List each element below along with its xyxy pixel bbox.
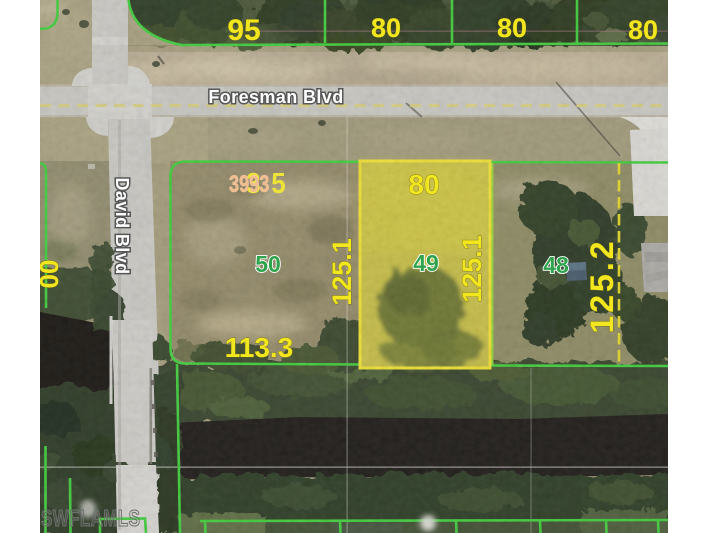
svg-text:80: 80 xyxy=(497,13,527,43)
svg-text:125.1: 125.1 xyxy=(327,238,357,306)
svg-text:49: 49 xyxy=(413,250,439,276)
svg-text:95: 95 xyxy=(227,14,260,47)
svg-text:80: 80 xyxy=(371,13,401,43)
svg-text:3993: 3993 xyxy=(229,169,269,197)
svg-text:SWFLAMLS: SWFLAMLS xyxy=(41,507,140,532)
svg-text:48: 48 xyxy=(543,252,569,278)
svg-text:125.2: 125.2 xyxy=(584,238,620,333)
svg-text:80: 80 xyxy=(408,169,439,200)
svg-text:Foresman Blvd: Foresman Blvd xyxy=(208,87,343,107)
svg-text:50: 50 xyxy=(255,251,281,277)
svg-text:125.1: 125.1 xyxy=(457,235,487,303)
svg-text:80: 80 xyxy=(628,15,658,45)
svg-text:David Blvd: David Blvd xyxy=(112,177,132,274)
svg-text:113.3: 113.3 xyxy=(225,332,294,363)
